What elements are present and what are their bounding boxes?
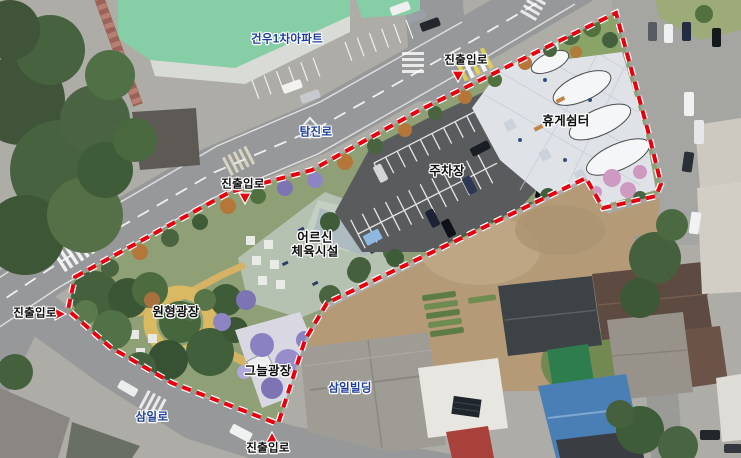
car [724,444,741,453]
aerial-site-plan: 건우1차아파트 진출입로 휴게쉼터 탐진로 주차장 진출입로 어르신 체육시설 … [0,0,741,458]
dark-slate-roof [498,276,602,356]
site-plan-map [0,0,741,458]
car [700,430,720,440]
east-building [697,182,741,294]
